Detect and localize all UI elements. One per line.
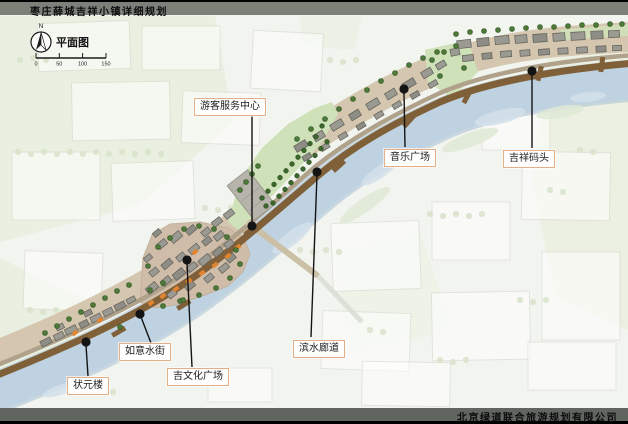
compass-north-label: N	[39, 23, 44, 30]
tree-icon	[244, 180, 249, 185]
faint-tree-icon	[106, 151, 112, 157]
park-tree-icon	[266, 189, 271, 194]
faint-tree-icon	[517, 297, 523, 303]
faint-tree-icon	[530, 299, 536, 305]
park-tree-icon	[260, 196, 265, 201]
park-tree-icon	[277, 194, 282, 199]
tree-icon	[146, 264, 151, 269]
anchor-dot	[135, 309, 144, 318]
anchor-dot	[312, 167, 321, 176]
tree-icon	[197, 293, 202, 298]
tree-icon	[91, 303, 96, 308]
tree-icon	[238, 262, 243, 267]
park-tree-icon	[271, 201, 276, 206]
callout-ruyi-water-street: 如意水街	[119, 343, 171, 361]
scale-tick-150: 150	[101, 62, 110, 68]
callout-zhuangyuan-tower: 状元楼	[67, 377, 109, 395]
tree-icon	[67, 317, 72, 322]
park-tree-icon	[264, 204, 269, 209]
faint-tree-icon	[463, 357, 469, 363]
callout-visitor-center: 游客服务中心	[194, 98, 266, 116]
faint-tree-icon	[297, 247, 303, 253]
anchor-dot	[399, 84, 408, 93]
faint-tree-icon	[93, 149, 99, 155]
tree-icon	[620, 22, 625, 27]
faint-tree-icon	[560, 189, 566, 195]
faint-tree-icon	[310, 249, 316, 255]
title-bar: 枣庄薛城吉祥小镇详细规划	[0, 0, 628, 15]
tree-icon	[212, 227, 217, 232]
tree-icon	[454, 44, 459, 49]
park-tree-icon	[278, 175, 283, 180]
building	[450, 48, 460, 57]
park-tree-icon	[313, 153, 318, 158]
faint-tree-icon	[367, 327, 373, 333]
faint-tree-icon	[53, 307, 59, 313]
building	[576, 47, 587, 54]
faint-tree-icon	[543, 297, 549, 303]
tree-icon	[438, 74, 443, 79]
faint-tree-icon	[590, 149, 596, 155]
tree-icon	[43, 331, 48, 336]
park-tree-icon	[283, 187, 288, 192]
faint-tree-icon	[27, 307, 33, 313]
tree-icon	[55, 324, 60, 329]
faint-tree-icon	[80, 151, 86, 157]
footer-bar: 北京绿道联合旅游规划有限公司	[0, 408, 628, 424]
faint-tree-icon	[479, 211, 485, 217]
tree-icon	[228, 276, 233, 281]
tree-icon	[608, 22, 613, 27]
building	[533, 34, 548, 43]
building	[538, 49, 549, 56]
company-name: 北京绿道联合旅游规划有限公司	[457, 409, 618, 424]
faint-tree-icon	[577, 147, 583, 153]
tree-icon	[442, 50, 447, 55]
faint-tree-icon	[327, 57, 333, 63]
faint-tree-icon	[450, 359, 456, 365]
faint-tree-icon	[145, 149, 151, 155]
building	[612, 45, 621, 50]
parcel	[331, 220, 421, 291]
faint-tree-icon	[202, 205, 208, 211]
park-tree-icon	[290, 162, 295, 167]
parcel	[72, 81, 171, 141]
parcel	[12, 152, 100, 220]
anchor-dot	[182, 255, 191, 264]
park-tree-icon	[284, 168, 289, 173]
tree-icon	[256, 164, 261, 169]
park-tree-icon	[301, 167, 306, 172]
faint-tree-icon	[440, 213, 446, 219]
tree-icon	[115, 289, 120, 294]
park-tree-icon	[308, 141, 313, 146]
sheet-title: 枣庄薛城吉祥小镇详细规划	[30, 3, 168, 18]
tree-icon	[538, 25, 543, 30]
building	[495, 35, 510, 44]
faint-tree-icon	[110, 389, 116, 395]
tree-icon	[309, 127, 314, 132]
scale-tick-50: 50	[56, 62, 62, 68]
parcel	[431, 291, 530, 361]
park-tree-icon	[320, 124, 325, 129]
faint-tree-icon	[17, 57, 23, 63]
tree-icon	[365, 88, 370, 93]
parcel	[432, 202, 510, 260]
tree-icon	[118, 325, 123, 330]
tree-icon	[580, 23, 585, 28]
faint-tree-icon	[380, 329, 386, 335]
faint-tree-icon	[132, 151, 138, 157]
tree-icon	[462, 66, 467, 71]
tree-icon	[161, 304, 166, 309]
faint-tree-icon	[41, 149, 47, 155]
tree-icon	[168, 236, 173, 241]
tree-icon	[234, 248, 239, 253]
faint-tree-icon	[453, 211, 459, 217]
tree-icon	[161, 281, 166, 286]
tree-icon	[552, 25, 557, 30]
scale-tick-0: 0	[34, 62, 37, 68]
building	[477, 37, 490, 46]
parcel	[362, 361, 451, 407]
tree-icon	[594, 23, 599, 28]
faint-tree-icon	[323, 247, 329, 253]
park-tree-icon	[325, 139, 330, 144]
park-tree-icon	[295, 173, 300, 178]
tree-icon	[421, 56, 426, 61]
building	[608, 30, 619, 38]
tree-icon	[496, 28, 501, 33]
building	[571, 32, 585, 41]
parcel	[142, 26, 220, 70]
building	[558, 48, 568, 55]
tree-icon	[524, 26, 529, 31]
callout-waterfront-corridor: 滨水廊道	[293, 340, 345, 358]
tree-icon	[351, 97, 356, 102]
tree-icon	[407, 63, 412, 68]
faint-tree-icon	[437, 357, 443, 363]
parcel	[251, 30, 324, 92]
faint-tree-icon	[40, 309, 46, 315]
faint-tree-icon	[353, 57, 359, 63]
tree-icon	[468, 30, 473, 35]
anchor-dot	[527, 66, 536, 75]
tree-icon	[379, 79, 384, 84]
callout-jixiang-wharf: 吉祥码头	[503, 150, 555, 168]
parcel	[111, 161, 195, 222]
faint-tree-icon	[15, 149, 21, 155]
building	[553, 33, 566, 42]
parcel	[528, 342, 616, 390]
tree-icon	[482, 29, 487, 34]
leader-line	[404, 92, 405, 147]
tree-icon	[214, 286, 219, 291]
tree-icon	[127, 283, 132, 288]
callout-music-plaza: 音乐广场	[384, 149, 436, 167]
callout-ji-culture-plaza: 吉文化广场	[167, 368, 229, 386]
anchor-dot	[247, 221, 256, 230]
tree-icon	[156, 245, 161, 250]
faint-tree-icon	[336, 249, 342, 255]
building	[520, 50, 530, 57]
building	[482, 53, 492, 60]
building	[462, 54, 474, 61]
park-tree-icon	[307, 160, 312, 165]
tree-icon	[430, 58, 435, 63]
tree-icon	[323, 117, 328, 122]
tree-icon	[510, 27, 515, 32]
tree-icon	[454, 32, 459, 37]
faint-tree-icon	[215, 207, 221, 213]
anchor-dot	[81, 337, 90, 346]
park-tree-icon	[314, 134, 319, 139]
faint-tree-icon	[340, 59, 346, 65]
faint-tree-icon	[119, 149, 125, 155]
park-tree-icon	[319, 146, 324, 151]
tree-icon	[79, 310, 84, 315]
parcel	[542, 252, 620, 340]
tree-icon	[197, 224, 202, 229]
tree-icon	[566, 24, 571, 29]
tree-icon	[295, 137, 300, 142]
plan-sheet: N 平面图 0 50 100 150 游客服务中心 音乐广场 吉祥码头 滨水廊道…	[0, 0, 628, 424]
park-tree-icon	[272, 182, 277, 187]
tree-icon	[181, 298, 186, 303]
tree-icon	[148, 288, 153, 293]
tree-icon	[435, 50, 440, 55]
tree-icon	[238, 188, 243, 193]
plan-view-label: 平面图	[56, 36, 89, 49]
tree-icon	[182, 227, 187, 232]
faint-tree-icon	[547, 187, 553, 193]
park-tree-icon	[302, 148, 307, 153]
faint-tree-icon	[54, 151, 60, 157]
faint-tree-icon	[67, 149, 73, 155]
scale-tick-100: 100	[78, 62, 87, 68]
faint-tree-icon	[30, 55, 36, 61]
building	[515, 34, 528, 43]
faint-tree-icon	[158, 151, 164, 157]
faint-tree-icon	[28, 151, 34, 157]
tree-icon	[337, 107, 342, 112]
building	[591, 31, 603, 40]
tree-icon	[225, 235, 230, 240]
tree-icon	[103, 296, 108, 301]
faint-tree-icon	[466, 213, 472, 219]
faint-tree-icon	[427, 211, 433, 217]
building	[500, 51, 511, 58]
site-plan-map: N 平面图 0 50 100 150	[0, 0, 628, 424]
park-tree-icon	[289, 180, 294, 185]
park-tree-icon	[296, 155, 301, 160]
building	[596, 46, 606, 53]
tree-icon	[393, 71, 398, 76]
